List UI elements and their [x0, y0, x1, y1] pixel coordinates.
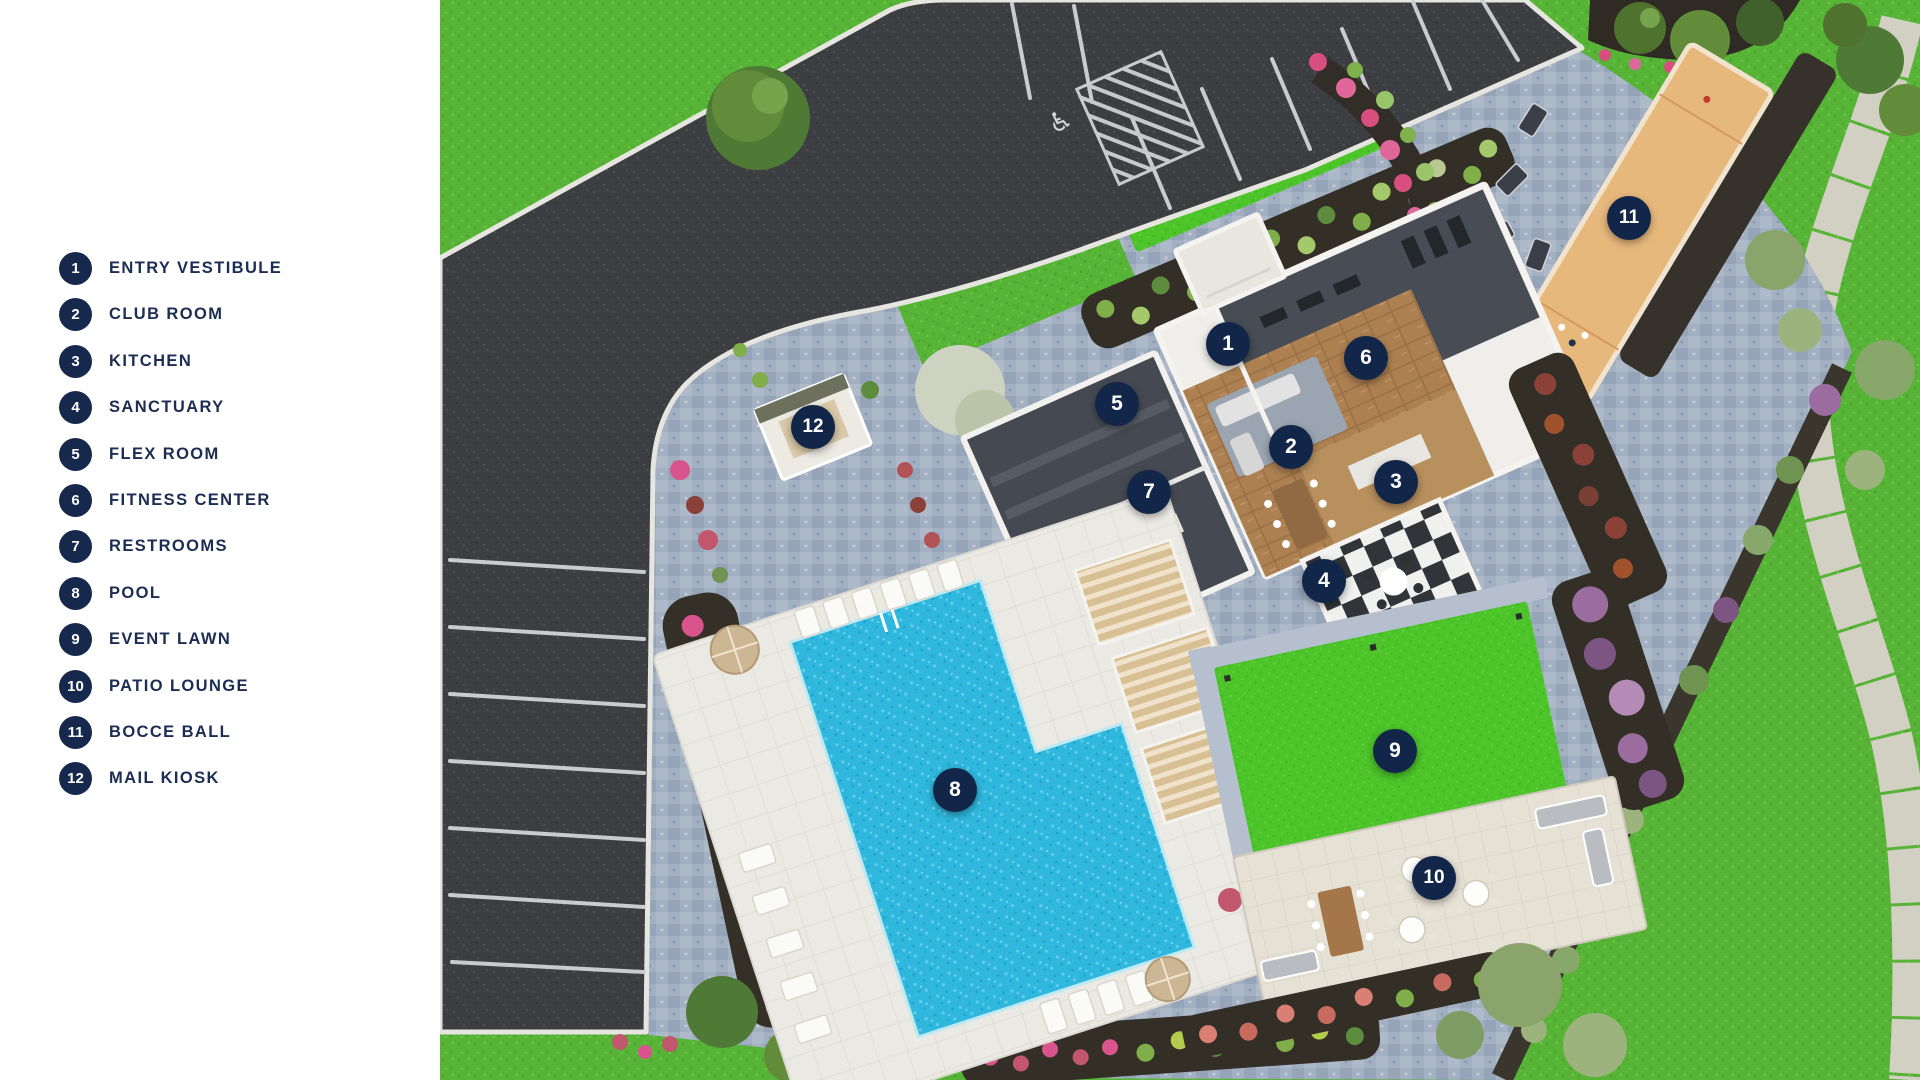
legend-item-label: SANCTUARY: [109, 398, 225, 417]
legend-item-label: PATIO LOUNGE: [109, 677, 249, 696]
legend-number-badge: 9: [59, 623, 92, 656]
legend-number-badge: 2: [59, 298, 92, 331]
map-marker-1[interactable]: 1: [1206, 322, 1250, 366]
legend-item-label: FITNESS CENTER: [109, 491, 271, 510]
legend-number-badge: 11: [59, 716, 92, 749]
legend-number-badge: 7: [59, 530, 92, 563]
map-markers: 123456789101112: [440, 0, 1920, 1080]
map-marker-9[interactable]: 9: [1373, 729, 1417, 773]
legend-item-11[interactable]: 11 BOCCE BALL: [59, 716, 282, 749]
map-marker-7[interactable]: 7: [1127, 470, 1171, 514]
legend-item-label: ENTRY VESTIBULE: [109, 259, 282, 278]
map-marker-2[interactable]: 2: [1269, 425, 1313, 469]
legend-item-label: FLEX ROOM: [109, 445, 220, 464]
legend-number-badge: 5: [59, 438, 92, 471]
legend-item-label: MAIL KIOSK: [109, 769, 220, 788]
legend-item-label: RESTROOMS: [109, 537, 228, 556]
legend-item-8[interactable]: 8 POOL: [59, 577, 282, 610]
legend-item-label: EVENT LAWN: [109, 630, 231, 649]
legend-panel: 1 ENTRY VESTIBULE 2 CLUB ROOM 3 KITCHEN …: [0, 0, 440, 1080]
map-marker-8[interactable]: 8: [933, 768, 977, 812]
legend-item-4[interactable]: 4 SANCTUARY: [59, 391, 282, 424]
legend-item-label: BOCCE BALL: [109, 723, 231, 742]
map-marker-4[interactable]: 4: [1302, 559, 1346, 603]
legend-item-7[interactable]: 7 RESTROOMS: [59, 530, 282, 563]
map-marker-3[interactable]: 3: [1374, 460, 1418, 504]
legend-number-badge: 1: [59, 252, 92, 285]
legend-number-badge: 6: [59, 484, 92, 517]
legend-item-1[interactable]: 1 ENTRY VESTIBULE: [59, 252, 282, 285]
legend-item-12[interactable]: 12 MAIL KIOSK: [59, 762, 282, 795]
legend-item-10[interactable]: 10 PATIO LOUNGE: [59, 670, 282, 703]
map-marker-5[interactable]: 5: [1095, 382, 1139, 426]
legend-item-6[interactable]: 6 FITNESS CENTER: [59, 484, 282, 517]
map-marker-10[interactable]: 10: [1412, 856, 1456, 900]
legend-number-badge: 12: [59, 762, 92, 795]
legend-item-3[interactable]: 3 KITCHEN: [59, 345, 282, 378]
site-map: ♿: [440, 0, 1920, 1080]
legend-number-badge: 10: [59, 670, 92, 703]
map-marker-11[interactable]: 11: [1607, 196, 1651, 240]
legend-item-9[interactable]: 9 EVENT LAWN: [59, 623, 282, 656]
map-marker-6[interactable]: 6: [1344, 336, 1388, 380]
map-marker-12[interactable]: 12: [791, 405, 835, 449]
legend-item-label: POOL: [109, 584, 161, 603]
legend-list: 1 ENTRY VESTIBULE 2 CLUB ROOM 3 KITCHEN …: [59, 252, 282, 795]
legend-item-label: KITCHEN: [109, 352, 192, 371]
amenity-site-plan-page: 1 ENTRY VESTIBULE 2 CLUB ROOM 3 KITCHEN …: [0, 0, 1920, 1080]
legend-item-5[interactable]: 5 FLEX ROOM: [59, 438, 282, 471]
legend-number-badge: 3: [59, 345, 92, 378]
legend-number-badge: 4: [59, 391, 92, 424]
legend-item-label: CLUB ROOM: [109, 305, 223, 324]
legend-item-2[interactable]: 2 CLUB ROOM: [59, 298, 282, 331]
legend-number-badge: 8: [59, 577, 92, 610]
